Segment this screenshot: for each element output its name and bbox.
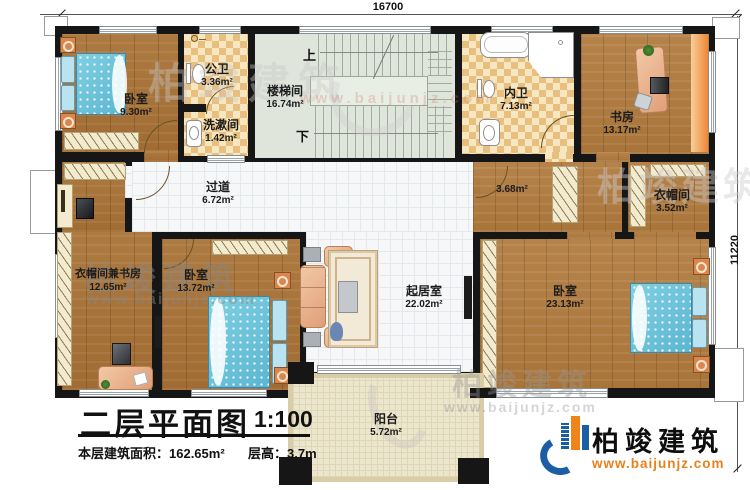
room-label-public-bath: 公卫3.36m²: [201, 62, 233, 90]
stair-down-label: 下: [296, 126, 309, 145]
door-opening: [596, 152, 630, 162]
room-label-bedroom-se: 卧室23.13m²: [546, 284, 583, 312]
plan-title: 二层平面图: [80, 399, 250, 444]
window: [497, 389, 607, 397]
stair-up-label: 上: [303, 45, 316, 64]
sofa: [300, 265, 326, 328]
cabinet-items: [61, 190, 65, 212]
wardrobe-rack: [650, 164, 706, 177]
toilet: [477, 79, 482, 98]
wardrobe-rack: [630, 165, 646, 227]
bed-pillow: [692, 319, 707, 348]
washbasin: [483, 125, 495, 141]
title-rule: [78, 434, 310, 437]
wardrobe-rack: [482, 240, 497, 388]
bed-pillow: [61, 56, 75, 83]
room-label-cloak-study: 衣帽间兼书房12.65m²: [75, 268, 141, 294]
bed-pillow: [272, 300, 287, 341]
wall-stub: [288, 362, 314, 384]
window: [192, 390, 266, 396]
room-label-private-bath: 内卫7.13m²: [500, 86, 532, 114]
room-label-bedroom-nw: 卧室9.30m²: [120, 92, 152, 120]
wall-tv: [155, 316, 161, 348]
door-opening: [125, 166, 132, 198]
wall-tv: [464, 276, 472, 319]
computer-tower: [112, 343, 131, 365]
tv-monitor: [76, 198, 94, 219]
room-label-cloakroom: 衣帽间3.52m²: [654, 188, 690, 216]
floor-plan-canvas: 16700 11220 上 下: [0, 0, 750, 490]
computer-monitor: [650, 77, 669, 94]
room-label-balcony: 阳台5.72m²: [370, 412, 402, 440]
door-opening: [567, 232, 615, 239]
wardrobe-rack: [64, 163, 126, 180]
plant: [101, 380, 110, 389]
room-label-washroom: 洗漱间1.42m²: [203, 118, 239, 146]
dimension-top-line: [40, 14, 742, 15]
exterior-bay: [30, 170, 57, 234]
brand-logo-icon: [561, 423, 569, 449]
nightstand: [693, 258, 710, 275]
room-label-hallway: 过道6.72m²: [202, 180, 234, 208]
window: [200, 27, 240, 33]
balcony-column: [458, 458, 489, 484]
floor-area-text: 本层建筑面积：162.65m²: [78, 443, 225, 462]
toilet: [186, 63, 191, 84]
person-figure: [330, 322, 343, 341]
nightstand: [274, 272, 291, 289]
bed-pillow: [61, 85, 75, 111]
exterior-bay: [714, 348, 744, 402]
nightstand: [60, 37, 76, 53]
room-label-living: 起居室22.02m²: [405, 284, 442, 312]
cabinet: [57, 184, 73, 228]
plan-scale: 1:100: [254, 406, 313, 433]
wardrobe-rack: [212, 240, 288, 255]
washbasin: [189, 126, 199, 140]
door-opening: [634, 232, 696, 239]
side-table: [303, 332, 321, 347]
room-label-study: 书房13.17m²: [603, 110, 640, 138]
window: [709, 52, 715, 132]
wardrobe-rack: [57, 232, 72, 386]
room-label-small-hall: 3.68m²: [496, 184, 528, 197]
door-opening: [545, 152, 573, 162]
nightstand: [693, 356, 710, 373]
faucet-icon: [191, 35, 198, 42]
dimension-right-label: 11220: [729, 225, 741, 275]
bed-sheet-fold: [210, 298, 226, 386]
window: [600, 27, 682, 33]
brand-name: 柏竣建筑: [592, 420, 724, 459]
plant: [643, 45, 654, 56]
room-label-bedroom-sw: 卧室13.72m²: [177, 268, 214, 296]
wall-stub: [184, 104, 206, 112]
room-hallway-floor: [132, 162, 473, 232]
toilet: [483, 80, 495, 98]
brand-logo-icon: [582, 425, 589, 450]
dimension-top-label: 16700: [373, 1, 404, 13]
coffee-table: [338, 281, 358, 313]
bed-pillow: [692, 287, 707, 316]
window: [80, 390, 148, 396]
wardrobe-rack: [64, 132, 139, 150]
window: [300, 27, 430, 33]
faucet-icon: [199, 39, 206, 40]
wardrobe-rack: [552, 166, 578, 223]
brand-logo-icon: [571, 416, 580, 450]
door-opening: [208, 156, 244, 162]
bathtub: [484, 36, 528, 53]
floor-runner: [691, 34, 708, 152]
bed-sheet-fold: [632, 285, 647, 351]
brand-website: www.baijunjz.com: [592, 456, 725, 471]
shower-drain: [558, 40, 563, 45]
nightstand: [60, 113, 76, 129]
window: [100, 27, 156, 33]
side-table: [303, 247, 321, 262]
exterior-step: [712, 17, 740, 39]
floor-height-text: 层高：3.7m: [248, 443, 317, 462]
room-label-stairwell: 楼梯间16.74m²: [266, 84, 303, 112]
